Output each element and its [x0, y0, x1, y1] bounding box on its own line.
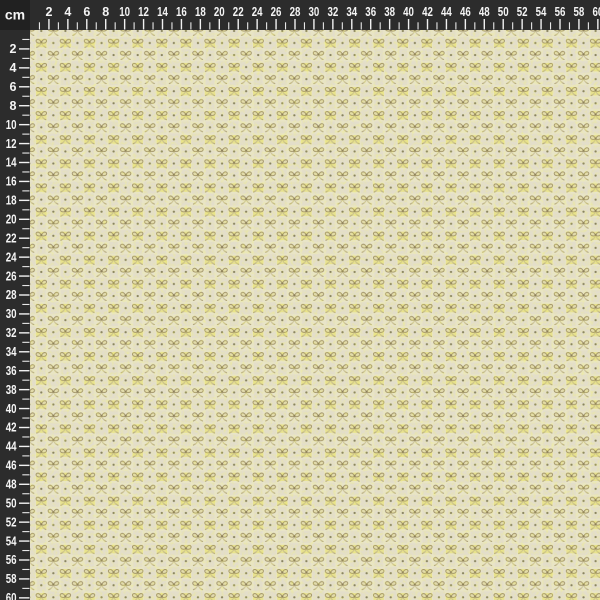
svg-text:30: 30	[6, 307, 17, 321]
svg-text:56: 56	[6, 553, 17, 567]
svg-text:58: 58	[574, 5, 585, 19]
svg-text:28: 28	[6, 288, 17, 302]
svg-text:12: 12	[6, 137, 17, 151]
svg-text:26: 26	[271, 5, 282, 19]
svg-text:40: 40	[403, 5, 414, 19]
svg-text:14: 14	[157, 5, 168, 19]
svg-text:4: 4	[10, 61, 17, 75]
svg-text:46: 46	[460, 5, 471, 19]
svg-text:20: 20	[6, 212, 17, 226]
svg-text:52: 52	[6, 515, 17, 529]
svg-text:24: 24	[6, 250, 17, 264]
svg-text:10: 10	[119, 5, 130, 19]
svg-text:cm: cm	[5, 7, 25, 23]
svg-text:18: 18	[6, 194, 17, 208]
svg-text:22: 22	[6, 231, 17, 245]
svg-text:60: 60	[592, 5, 600, 19]
svg-text:22: 22	[233, 5, 244, 19]
svg-text:40: 40	[6, 402, 17, 416]
svg-text:6: 6	[83, 5, 90, 19]
svg-text:12: 12	[138, 5, 149, 19]
svg-text:50: 50	[6, 496, 17, 510]
svg-text:8: 8	[10, 99, 17, 113]
svg-text:30: 30	[309, 5, 320, 19]
svg-text:52: 52	[517, 5, 528, 19]
svg-text:16: 16	[176, 5, 187, 19]
svg-text:6: 6	[10, 80, 17, 94]
svg-text:8: 8	[102, 5, 109, 19]
svg-text:34: 34	[346, 5, 357, 19]
svg-text:44: 44	[6, 440, 17, 454]
svg-text:16: 16	[6, 175, 17, 189]
svg-text:26: 26	[6, 269, 17, 283]
svg-text:38: 38	[6, 383, 17, 397]
svg-text:48: 48	[479, 5, 490, 19]
svg-text:28: 28	[290, 5, 301, 19]
svg-text:46: 46	[6, 459, 17, 473]
svg-text:20: 20	[214, 5, 225, 19]
svg-text:44: 44	[441, 5, 452, 19]
svg-text:2: 2	[45, 5, 52, 19]
svg-text:42: 42	[422, 5, 433, 19]
svg-text:10: 10	[6, 118, 17, 132]
svg-text:54: 54	[536, 5, 547, 19]
svg-text:38: 38	[384, 5, 395, 19]
svg-text:36: 36	[365, 5, 376, 19]
svg-text:60: 60	[6, 591, 17, 600]
svg-text:4: 4	[64, 5, 71, 19]
svg-text:2: 2	[10, 42, 17, 56]
svg-text:14: 14	[6, 156, 17, 170]
svg-text:58: 58	[6, 572, 17, 586]
svg-text:34: 34	[6, 345, 17, 359]
svg-text:48: 48	[6, 477, 17, 491]
svg-text:42: 42	[6, 421, 17, 435]
svg-text:18: 18	[195, 5, 206, 19]
svg-text:32: 32	[327, 5, 338, 19]
svg-text:56: 56	[555, 5, 566, 19]
svg-text:54: 54	[6, 534, 17, 548]
svg-text:36: 36	[6, 364, 17, 378]
svg-text:24: 24	[252, 5, 263, 19]
svg-text:50: 50	[498, 5, 509, 19]
svg-text:32: 32	[6, 326, 17, 340]
